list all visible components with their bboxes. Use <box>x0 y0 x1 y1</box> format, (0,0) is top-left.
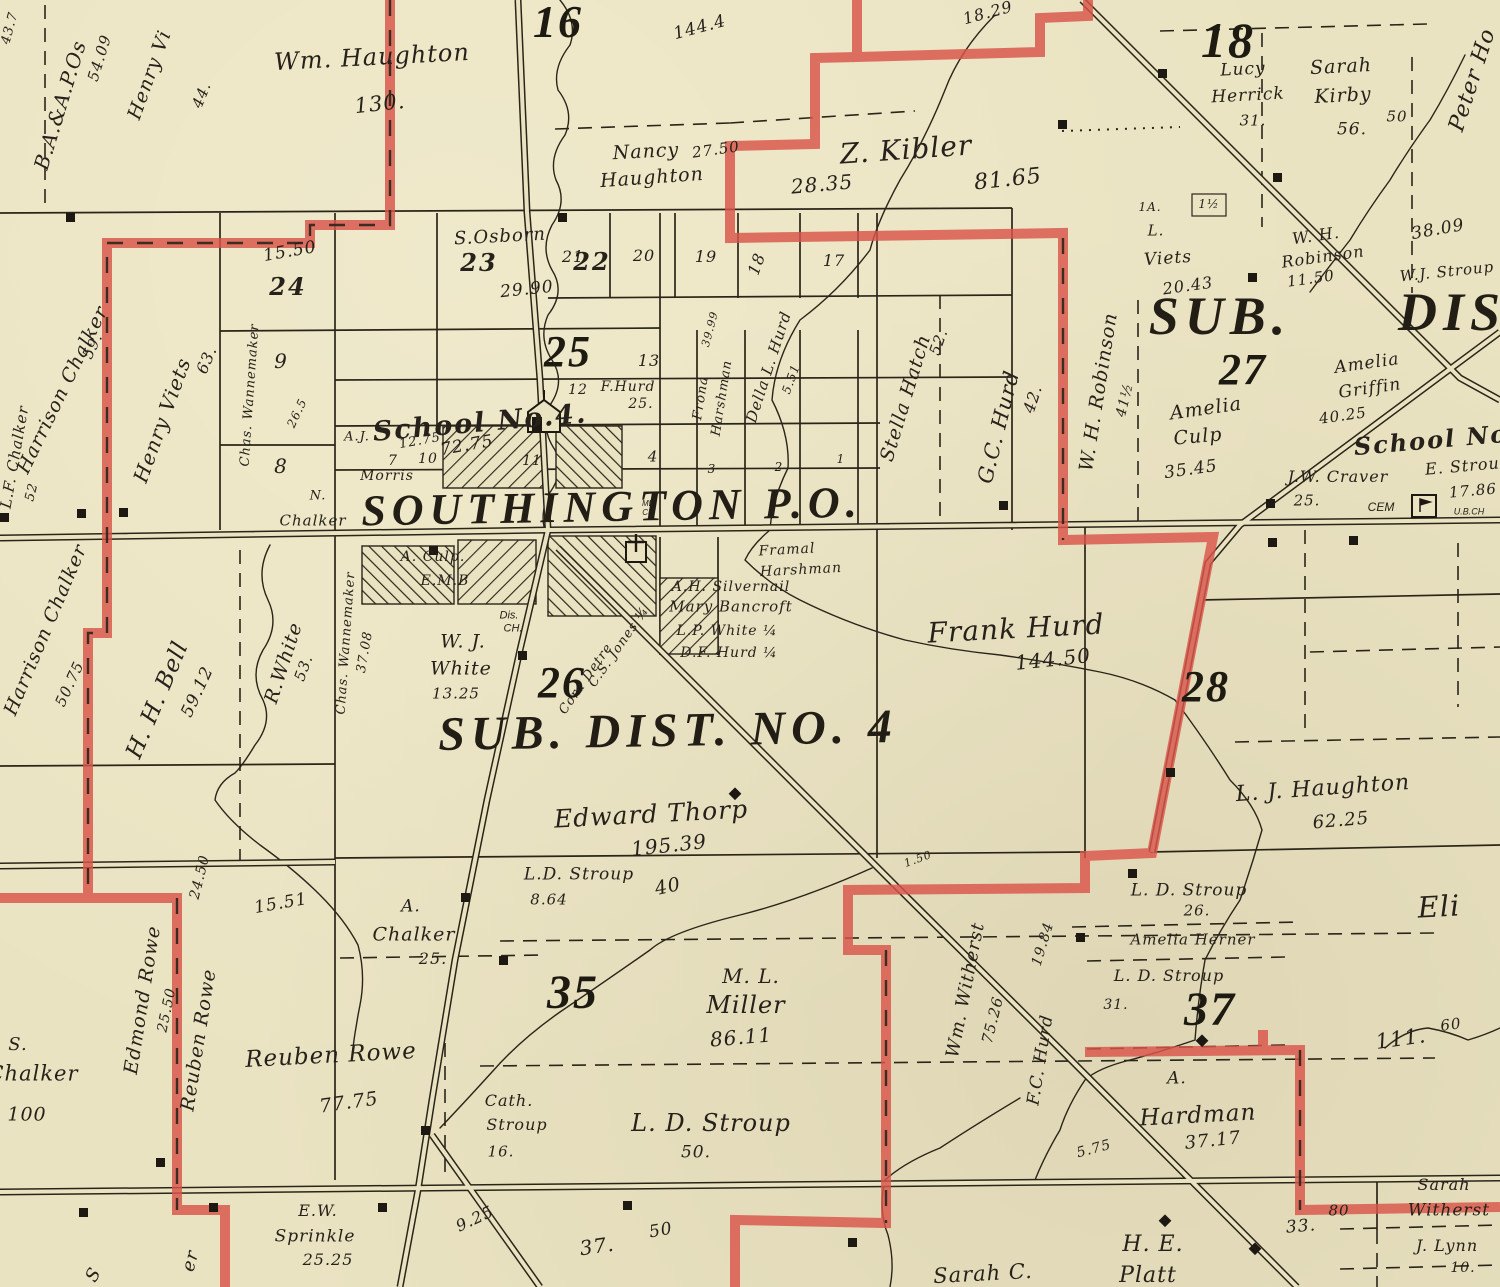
parcel-label: 75.26 <box>980 995 1006 1045</box>
parcel-label: 56. <box>1337 122 1367 139</box>
parcel-label: 26. <box>1184 904 1211 919</box>
parcel-label: L. D. Stroup <box>1131 883 1248 900</box>
parcel-label: 130. <box>354 91 407 117</box>
section-number: 28 <box>1182 665 1230 709</box>
parcel-label: Culp <box>1173 425 1223 448</box>
parcel-label: 40.25 <box>1318 405 1368 427</box>
parcel-label: 8 <box>274 456 288 476</box>
parcel-label: Lucy <box>1220 60 1266 79</box>
parcel-label: Sprinkle <box>275 1229 356 1246</box>
parcel-label: 19.84 <box>1030 920 1057 967</box>
parcel-label: H. E. <box>1122 1234 1183 1256</box>
parcel-label: 50 <box>648 1221 674 1242</box>
parcel-label: Harrison Chalker <box>1 542 90 718</box>
parcel-label: Mary Bancroft <box>669 600 793 615</box>
section-number: 18 <box>1201 15 1255 65</box>
parcel-label: W. H. Robinson <box>1077 311 1121 473</box>
parcel-label: J. Lynn <box>1416 1238 1478 1254</box>
section-number: 16 <box>533 0 583 45</box>
parcel-label: A.J. <box>344 431 370 444</box>
parcel-label: L.D. Stroup <box>524 867 634 884</box>
parcel-label: Z. Kibler <box>839 131 973 168</box>
section-number: 25 <box>544 330 592 374</box>
parcel-label: Reuben Rowe <box>245 1040 418 1072</box>
parcel-label: D.F. Hurd ¼ <box>680 646 778 660</box>
parcel-label: 52. <box>927 327 950 357</box>
parcel-label: A. Culp. <box>401 550 466 564</box>
parcel-label: 1 <box>837 453 846 465</box>
parcel-label: 23 <box>460 251 497 275</box>
parcel-label: Cath. <box>485 1093 534 1109</box>
parcel-label: W. J. <box>440 633 485 652</box>
parcel-label: U.B.CH <box>1454 508 1485 517</box>
parcel-label: 39.99 <box>700 310 720 348</box>
parcel-label: Stella Hatch <box>878 332 935 464</box>
parcel-label: Morris <box>360 469 414 483</box>
parcel-label: J.W. Craver <box>1288 469 1389 485</box>
parcel-label: 17.86 <box>1448 481 1497 500</box>
parcel-label: 44. <box>190 80 214 111</box>
parcel-label: Griffin <box>1338 376 1403 402</box>
parcel-label: 27.50 <box>691 139 741 161</box>
parcel-label: Platt <box>1119 1265 1177 1287</box>
parcel-label: 26.5 <box>285 397 309 430</box>
parcel-label: 60 <box>1440 1016 1463 1034</box>
parcel-label: 50.75 <box>53 659 87 709</box>
parcel-label: L. D. Stroup <box>631 1111 791 1135</box>
map-labels: 1618252726283537SOUTHINGTON P.O.SUB. DIS… <box>0 0 1500 1287</box>
parcel-label: 18.29 <box>961 0 1014 27</box>
parcel-label: 111. <box>1374 1025 1427 1053</box>
parcel-label: Amelia <box>1333 351 1400 377</box>
parcel-label: 25.50 <box>155 986 178 1033</box>
parcel-label: Chalker <box>0 1064 79 1085</box>
parcel-label: White <box>430 660 492 679</box>
parcel-label: Frank Hurd <box>927 610 1105 647</box>
parcel-label: Witherst <box>1408 1203 1490 1220</box>
parcel-label: S.Osborn <box>454 226 547 249</box>
parcel-label: 13.25 <box>432 687 480 702</box>
parcel-label: CEM <box>1368 501 1395 513</box>
parcel-label: 3 <box>708 463 717 475</box>
parcel-label: 15.51 <box>253 891 309 917</box>
parcel-label: 42. <box>1021 383 1045 415</box>
parcel-label: Dis. <box>500 611 519 622</box>
parcel-label: 29.90 <box>499 279 554 302</box>
parcel-label: A.H. Silvernail <box>672 580 790 594</box>
parcel-label: 38.09 <box>1410 217 1466 243</box>
parcel-label: CH <box>642 509 654 517</box>
parcel-label: Viets <box>1143 249 1192 269</box>
parcel-label: E.W. <box>298 1203 338 1219</box>
parcel-label: 50. <box>681 1145 711 1162</box>
parcel-label: 33. <box>1285 1217 1316 1237</box>
parcel-label: A. <box>401 899 421 916</box>
parcel-label: Edmond Rowe <box>122 924 164 1075</box>
parcel-label: CH. <box>504 624 523 635</box>
parcel-label: 11 <box>522 454 542 468</box>
parcel-label: 52 <box>23 481 40 502</box>
parcel-label: 19 <box>695 249 717 265</box>
parcel-label: 9.25 <box>454 1203 497 1234</box>
parcel-label: Wm. Haughton <box>274 40 471 74</box>
parcel-label: 13 <box>638 353 660 369</box>
parcel-label: Sarah <box>1418 1177 1471 1193</box>
parcel-label: Amelia Herner <box>1130 933 1255 948</box>
parcel-label: 25. <box>1294 494 1321 509</box>
parcel-label: L. D. Stroup <box>1114 968 1224 984</box>
parcel-label: 31. <box>1103 998 1128 1012</box>
parcel-label: 16. <box>488 1145 515 1160</box>
parcel-label: School No. <box>1353 421 1500 459</box>
parcel-label: 144.4 <box>672 13 728 43</box>
parcel-label: E. Stroup <box>1424 454 1500 477</box>
parcel-label: Henry Vi <box>125 28 175 122</box>
parcel-label: L. <box>1148 224 1165 239</box>
parcel-label: 25. <box>628 397 653 411</box>
parcel-label: 31. <box>1240 114 1267 129</box>
parcel-label: Peter Ho <box>1446 26 1500 134</box>
parcel-label: 18 <box>746 251 769 277</box>
parcel-label: 2 <box>775 461 784 473</box>
parcel-label: 50 <box>1386 110 1407 125</box>
parcel-label: 144.50 <box>1014 645 1092 673</box>
parcel-label: Edward Thorp <box>553 796 748 831</box>
parcel-label: Nancy <box>612 141 679 163</box>
parcel-label: 63. <box>194 344 220 376</box>
parcel-label: 41½ <box>1114 382 1136 419</box>
parcel-label: 195.39 <box>630 831 708 859</box>
parcel-label: Stroup <box>486 1117 547 1133</box>
parcel-label: 28.35 <box>790 171 854 196</box>
parcel-label: Chas. Wannemaker <box>239 323 262 467</box>
parcel-label: Harrison Chalker <box>14 303 112 476</box>
parcel-label: Chas. Wannemaker <box>335 571 358 715</box>
parcel-label: ME <box>642 500 654 508</box>
parcel-label: 86.11 <box>709 1024 773 1049</box>
parcel-label: W.J. Stroup <box>1399 260 1495 285</box>
parcel-label: 21 <box>562 249 584 265</box>
parcel-label: L. J. Haughton <box>1235 772 1411 806</box>
parcel-label: 59.12 <box>179 664 217 720</box>
parcel-label: W. H. <box>1291 225 1341 248</box>
parcel-label: 15.50 <box>262 239 318 265</box>
parcel-label: 43.7 <box>0 10 21 45</box>
plat-map: 1618252726283537SOUTHINGTON P.O.SUB. DIS… <box>0 0 1500 1287</box>
parcel-label: N. <box>310 490 327 503</box>
parcel-label: L.P. White ¼ <box>676 624 777 638</box>
parcel-label: 20 <box>633 248 655 264</box>
parcel-label: Chalker <box>372 926 455 945</box>
parcel-label: 10. <box>1450 1261 1475 1275</box>
parcel-label: 40 <box>653 875 683 899</box>
parcel-label: 81.65 <box>973 166 1043 195</box>
parcel-label: 77.75 <box>318 1089 379 1116</box>
parcel-label: 4 <box>648 450 659 465</box>
parcel-label: Miller <box>706 993 785 1017</box>
parcel-label: 25.25 <box>303 1252 354 1268</box>
section-number: 27 <box>1219 348 1267 392</box>
parcel-label: M. L. <box>722 966 780 986</box>
parcel-label: 5.51 <box>780 363 802 396</box>
parcel-label: 11.50 <box>1286 268 1336 290</box>
parcel-label: Reuben Rowe <box>178 968 219 1113</box>
parcel-label: Harshman <box>710 359 735 437</box>
parcel-label: S <box>83 1265 105 1286</box>
parcel-label: 100 <box>7 1106 46 1125</box>
parcel-label: Framal <box>758 542 816 559</box>
parcel-label: 37. <box>578 1234 615 1259</box>
parcel-label: 62.25 <box>1312 810 1370 833</box>
parcel-label: F.Hurd <box>601 380 656 394</box>
parcel-label: 5.75 <box>1075 1138 1113 1161</box>
parcel-label: 1.50 <box>903 849 934 869</box>
parcel-label: Kirby <box>1314 85 1372 107</box>
parcel-label: 25. <box>419 951 447 967</box>
district-label: DIS <box>1398 285 1500 339</box>
parcel-label: S. <box>8 1036 27 1054</box>
district-label: SUB. DIST. NO. 4 <box>438 703 898 759</box>
parcel-label: 17 <box>823 253 845 269</box>
parcel-label: 80 <box>1328 1204 1349 1219</box>
parcel-label: 1½ <box>1198 198 1219 210</box>
parcel-label: 24.50 <box>188 853 212 900</box>
parcel-label: 8.64 <box>530 893 567 908</box>
parcel-label: 37.08 <box>355 630 375 674</box>
parcel-label: 9 <box>274 351 288 371</box>
parcel-label: 35.45 <box>1163 458 1219 482</box>
parcel-label: 1A. <box>1138 201 1161 213</box>
parcel-label: 10 <box>418 452 438 466</box>
parcel-label: Sarah C. <box>933 1261 1034 1287</box>
parcel-label: Henry Viets <box>130 355 194 485</box>
parcel-label: F.C. Hurd <box>1025 1013 1056 1106</box>
parcel-label: B.A.&A.P.Os <box>31 38 89 172</box>
parcel-label: er <box>180 1248 203 1273</box>
parcel-label: A. <box>1167 1071 1187 1088</box>
district-label: SOUTHINGTON P.O. <box>361 481 863 534</box>
parcel-label: 7 <box>388 454 398 468</box>
parcel-label: E.M.B <box>421 574 470 588</box>
parcel-label: Harshman <box>760 561 843 579</box>
parcel-label: Haughton <box>600 165 705 191</box>
section-number: 35 <box>547 969 599 1017</box>
parcel-label: Eli <box>1417 891 1461 922</box>
parcel-label: 37.17 <box>1184 1129 1242 1153</box>
parcel-label: G.C. Hurd <box>975 368 1023 485</box>
parcel-label: Frona <box>691 375 711 421</box>
parcel-label: Chalker <box>279 514 346 529</box>
parcel-label: 24 <box>269 275 306 299</box>
section-number: 37 <box>1184 986 1236 1034</box>
parcel-label: Herrick <box>1211 86 1285 107</box>
parcel-label: Sarah <box>1310 56 1373 78</box>
parcel-label: Amelia <box>1169 395 1243 424</box>
parcel-label: 12 <box>568 383 588 397</box>
parcel-label: 54.09 <box>86 33 114 83</box>
